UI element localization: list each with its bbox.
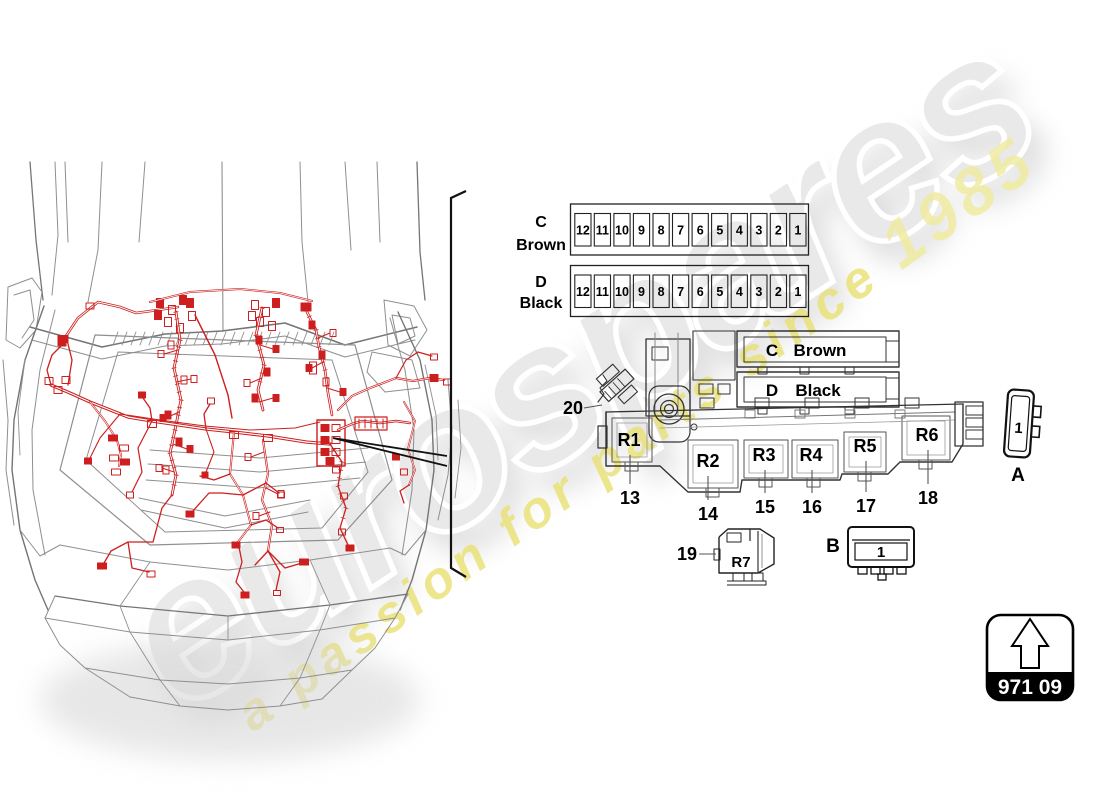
svg-text:5: 5 xyxy=(716,224,723,238)
svg-text:8: 8 xyxy=(658,224,665,238)
svg-text:3: 3 xyxy=(755,285,762,299)
svg-text:Black: Black xyxy=(520,295,563,312)
svg-text:20: 20 xyxy=(563,398,583,418)
svg-text:1: 1 xyxy=(794,285,801,299)
svg-text:D: D xyxy=(766,381,778,400)
svg-text:3: 3 xyxy=(755,224,762,238)
svg-text:2: 2 xyxy=(775,285,782,299)
svg-text:16: 16 xyxy=(802,497,822,517)
svg-text:A: A xyxy=(1011,465,1025,486)
svg-text:R1: R1 xyxy=(617,430,640,450)
svg-text:7: 7 xyxy=(677,285,684,299)
svg-text:C: C xyxy=(535,214,547,231)
svg-text:4: 4 xyxy=(736,224,743,238)
svg-text:Black: Black xyxy=(795,381,841,400)
svg-text:19: 19 xyxy=(677,544,697,564)
svg-text:13: 13 xyxy=(620,488,640,508)
svg-text:2: 2 xyxy=(775,224,782,238)
svg-text:1: 1 xyxy=(794,224,801,238)
svg-text:R6: R6 xyxy=(915,425,938,445)
svg-text:11: 11 xyxy=(596,224,609,238)
svg-text:12: 12 xyxy=(576,285,590,299)
svg-text:B: B xyxy=(826,536,840,557)
svg-text:9: 9 xyxy=(638,285,645,299)
svg-text:15: 15 xyxy=(755,497,775,517)
svg-text:5: 5 xyxy=(716,285,723,299)
svg-text:R4: R4 xyxy=(799,445,822,465)
svg-text:14: 14 xyxy=(698,504,718,524)
svg-text:6: 6 xyxy=(697,285,704,299)
svg-text:1: 1 xyxy=(877,544,885,561)
svg-text:1: 1 xyxy=(1014,420,1024,438)
svg-text:R3: R3 xyxy=(752,445,775,465)
svg-text:R2: R2 xyxy=(696,451,719,471)
svg-text:9: 9 xyxy=(638,224,645,238)
svg-text:7: 7 xyxy=(677,224,684,238)
svg-text:Brown: Brown xyxy=(516,237,566,254)
svg-text:11: 11 xyxy=(596,285,609,299)
svg-text:8: 8 xyxy=(658,285,665,299)
svg-text:971 09: 971 09 xyxy=(998,676,1062,699)
svg-text:R7: R7 xyxy=(731,554,750,571)
svg-text:D: D xyxy=(535,274,547,291)
svg-text:10: 10 xyxy=(615,285,629,299)
svg-text:R5: R5 xyxy=(853,436,876,456)
svg-text:Brown: Brown xyxy=(794,341,847,360)
svg-text:6: 6 xyxy=(697,224,704,238)
svg-text:12: 12 xyxy=(576,224,590,238)
svg-text:17: 17 xyxy=(856,496,876,516)
svg-text:4: 4 xyxy=(736,285,743,299)
svg-text:10: 10 xyxy=(615,224,629,238)
svg-text:18: 18 xyxy=(918,488,938,508)
svg-text:C: C xyxy=(766,341,778,360)
